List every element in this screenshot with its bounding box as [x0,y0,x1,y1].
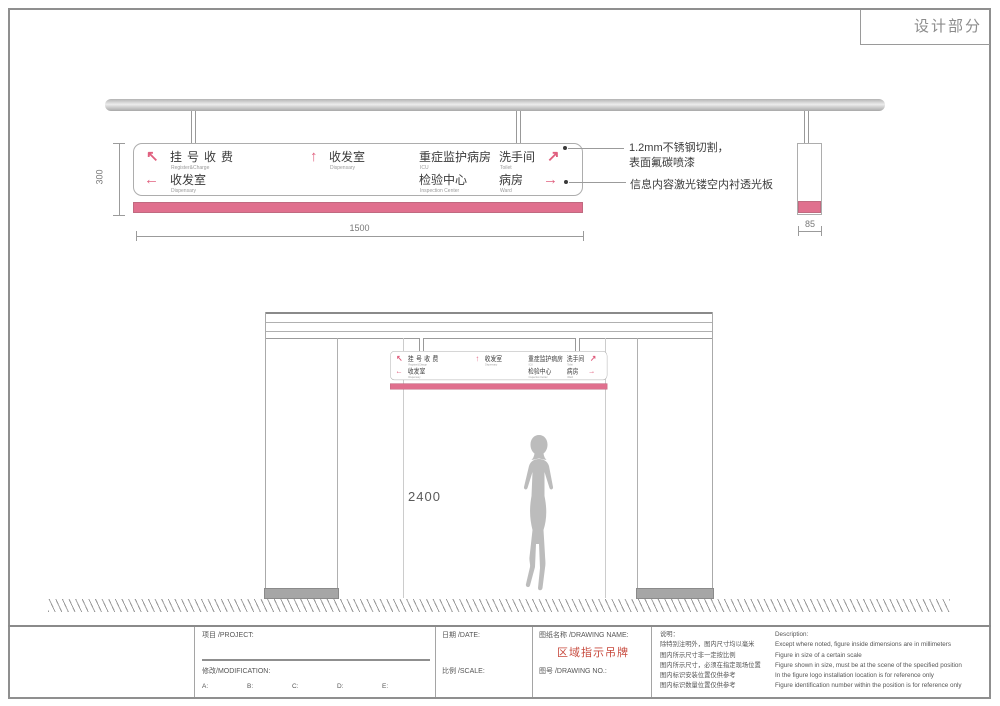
corner-box-bottom-line [860,44,990,45]
titleblock-divider-4 [651,627,652,697]
sign-label-toilet: 洗手间 [567,354,584,363]
drawing-sheet: 设计部分 ↖ 挂号收费 Register&Charge ↑ 收发室 Dispen… [0,0,1000,706]
drawing-no-label: 图号 /DRAWING NO.: [539,666,607,676]
dim-300-label: 300 [95,169,105,184]
sign-label-icu: 重症监护病房 [419,148,491,165]
arrow-left-icon: ← [395,367,402,375]
sign-label-dispensary-left: 收发室 [408,366,425,375]
overhead-sign: ↖ 挂号收费 Register&Charge ↑ 收发室 Dispensary … [133,143,583,213]
person-silhouette [512,435,566,600]
drawing-name-label: 图纸名称 /DRAWING NAME: [539,630,629,640]
hanging-rod-side [804,111,809,143]
titleblock-top-line [8,625,991,627]
modification-line [202,659,430,661]
sign-sublabel-inspection-center: Inspection Center [529,376,548,379]
material-note-line1: 1.2mm不锈钢切割， [629,139,729,155]
dim-2400-label: 2400 [408,489,441,504]
corner-box-left-line [860,10,861,44]
project-label: 项目 /PROJECT: [202,630,254,640]
sign-sublabel-dispensary-left: Dispensary [408,376,420,379]
arrow-up-icon: ↑ [310,149,318,164]
titleblock-divider-1 [194,627,195,697]
notes-english: Description: Except where noted, figure … [775,630,962,692]
arrow-right-icon: → [588,367,595,375]
sign-sublabel-dispensary-up: Dispensary [330,165,355,171]
sign-sublabel-ward: Ward [500,188,512,194]
elev-hanging-rod-left [419,338,424,352]
arrow-upright-icon: ↗ [590,354,596,362]
revision-b: B: [247,683,253,690]
arrow-upleft-icon: ↖ [396,354,402,362]
sign-label-ward: 病房 [499,171,523,188]
sign-label-inspection-center: 检验中心 [419,171,467,188]
elev-base-left [264,588,339,599]
elev-ceiling-line1 [265,312,713,314]
sign-sublabel-ward: Ward [567,376,573,379]
revision-a: A: [202,683,208,690]
elev-ceiling-line3 [265,331,713,332]
revision-e: E: [382,683,388,690]
elev-hanging-rod-right [575,338,580,352]
elev-column-right-edge [637,338,638,598]
sign-sublabel-dispensary-up: Dispensary [485,363,497,366]
elev-ceiling-line2 [265,322,713,323]
dim-85-line [798,231,822,232]
arrow-upright-icon: ↗ [547,149,560,164]
leader1-dot [563,146,567,150]
sign-label-register-charge: 挂号收费 [408,354,441,363]
scale-label: 比例 /SCALE: [442,666,485,676]
sign-side-view-band [798,201,821,213]
arrow-right-icon: → [543,172,558,187]
sign-label-inspection-center: 检验中心 [528,366,551,375]
sign-sublabel-inspection-center: Inspection Center [420,188,459,194]
arrow-left-icon: ← [144,172,159,187]
revision-d: D: [337,683,344,690]
date-label: 日期 /DATE: [442,630,480,640]
ceiling-rail [105,99,885,111]
dim-300-tick-top [113,143,125,144]
leader2-dot [564,180,568,184]
leader2-line [569,182,626,183]
elev-column-left-edge [337,338,338,598]
hanging-rod-left [191,111,196,143]
titleblock-divider-2 [435,627,436,697]
sign-pink-band [133,202,583,213]
sign-sublabel-dispensary-left: Dispensary [171,188,196,194]
modification-label: 修改/MODIFICATION: [202,666,270,676]
elev-ceiling-line4 [265,338,713,339]
titleblock-divider-3 [532,627,533,697]
elev-wall-left [265,312,266,598]
sign-label-dispensary-left: 收发室 [170,171,206,188]
arrow-upleft-icon: ↖ [146,149,159,164]
dim-1500-line [136,236,583,237]
sign-pink-band [390,383,607,389]
drawing-name-value: 区域指示吊牌 [557,644,629,660]
elev-wall-right [712,312,713,598]
dim-85-label: 85 [792,219,828,229]
revision-c: C: [292,683,299,690]
overhead-sign-artwork: ↖ 挂号收费 Register&Charge ↑ 收发室 Dispensary … [390,351,607,390]
sign-label-icu: 重症监护病房 [528,354,563,363]
material-note-line2: 表面氟碳喷漆 [629,154,695,170]
arrow-up-icon: ↑ [475,354,479,362]
elev-base-right [636,588,714,599]
dim-1500-tick-right [583,231,584,241]
sign-label-dispensary-up: 收发室 [485,354,502,363]
ground-hatch [48,599,950,612]
sign-label-ward: 病房 [567,366,579,375]
sign-label-register-charge: 挂号收费 [170,148,238,165]
leader1-line [568,148,624,149]
hanging-rod-right [516,111,521,143]
overhead-sign-artwork: ↖ 挂号收费 Register&Charge ↑ 收发室 Dispensary … [133,143,583,213]
dim-300-tick-bottom [113,215,125,216]
lightpanel-note: 信息内容激光镂空内衬透光板 [630,176,773,192]
sign-label-dispensary-up: 收发室 [329,148,365,165]
notes-chinese: 说明： 除特别注明外，图内尺寸均以毫米 图内所示尺寸非一定按比例 图内所示尺寸，… [660,630,761,692]
dim-300-line [119,143,120,215]
dim-1500-label: 1500 [136,223,583,233]
mini-sign-slot: ↖ 挂号收费 Register&Charge ↑ 收发室 Dispensary … [390,351,608,390]
sheet-section-title: 设计部分 [862,15,982,36]
sign-label-toilet: 洗手间 [499,148,535,165]
